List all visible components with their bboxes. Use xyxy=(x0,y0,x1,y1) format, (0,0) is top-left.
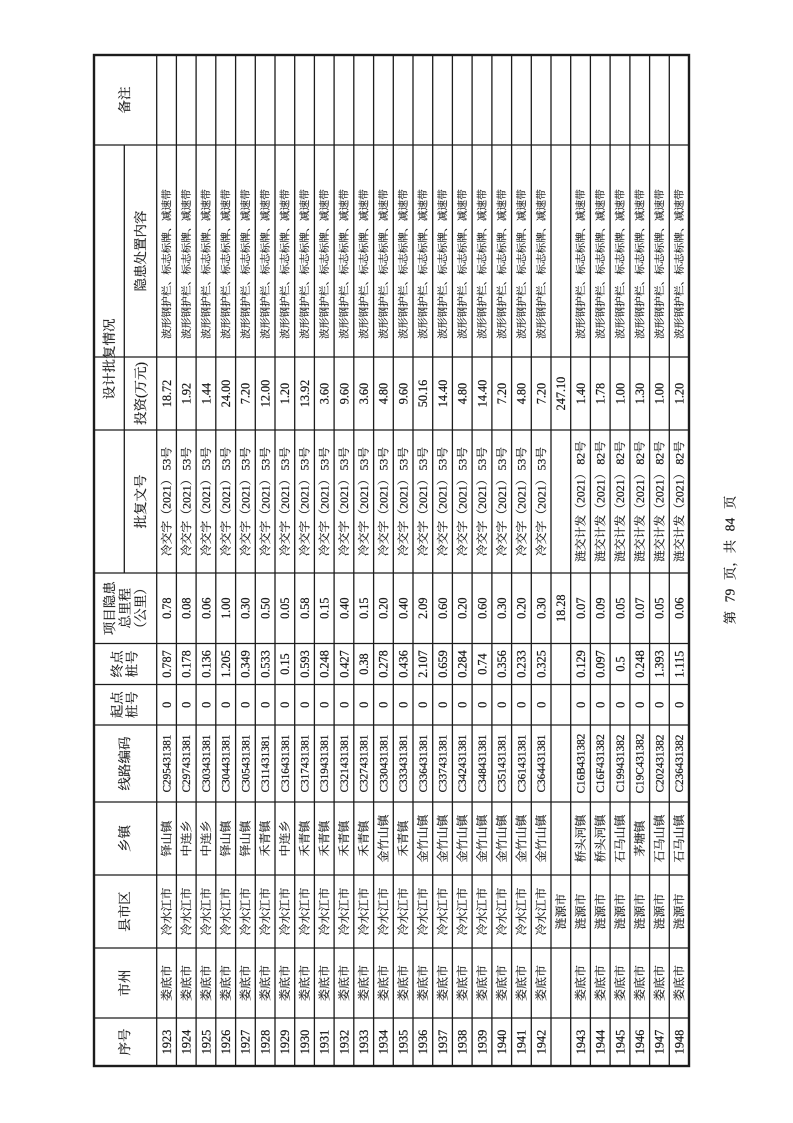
svg-text:2021: 2021 xyxy=(475,485,489,509)
svg-text:0: 0 xyxy=(318,702,332,708)
svg-text:0.30: 0.30 xyxy=(239,598,253,619)
svg-text:2021: 2021 xyxy=(613,479,627,503)
svg-text:2021: 2021 xyxy=(436,485,450,509)
svg-text:4.80: 4.80 xyxy=(377,383,391,404)
svg-text:2021: 2021 xyxy=(298,485,312,509)
svg-text:2021: 2021 xyxy=(593,479,607,503)
svg-text:0: 0 xyxy=(416,702,430,708)
svg-text:9.60: 9.60 xyxy=(337,383,351,404)
svg-text:0.78: 0.78 xyxy=(160,598,174,619)
svg-text:C364431381: C364431381 xyxy=(536,735,548,793)
svg-text:0.30: 0.30 xyxy=(495,598,509,619)
svg-text:0: 0 xyxy=(436,702,450,708)
svg-text:53: 53 xyxy=(475,459,489,471)
svg-text:0.07: 0.07 xyxy=(633,598,647,619)
svg-text:53: 53 xyxy=(298,459,312,471)
svg-text:7.20: 7.20 xyxy=(495,383,509,404)
svg-text:0.15: 0.15 xyxy=(318,598,332,619)
svg-text:82: 82 xyxy=(613,453,627,465)
svg-text:53: 53 xyxy=(534,459,548,471)
svg-text:0.284: 0.284 xyxy=(456,650,470,677)
svg-text:247.10: 247.10 xyxy=(554,377,568,411)
svg-text:1.78: 1.78 xyxy=(594,383,608,404)
svg-text:0.30: 0.30 xyxy=(534,598,548,619)
svg-text:7.20: 7.20 xyxy=(239,383,253,404)
svg-text:0: 0 xyxy=(219,702,233,708)
svg-text:1937: 1937 xyxy=(436,1030,450,1054)
svg-text:0: 0 xyxy=(180,702,194,708)
svg-text:53: 53 xyxy=(317,459,331,471)
svg-text:0.05: 0.05 xyxy=(653,598,667,619)
svg-text:0: 0 xyxy=(337,702,351,708)
svg-text:1.92: 1.92 xyxy=(180,383,194,404)
svg-text:1.20: 1.20 xyxy=(672,383,686,404)
svg-text:2021: 2021 xyxy=(258,485,272,509)
svg-text:1944: 1944 xyxy=(594,1030,608,1054)
svg-text:C351431381: C351431381 xyxy=(497,735,509,793)
svg-text:14.40: 14.40 xyxy=(436,380,450,407)
svg-text:79: 79 xyxy=(723,589,738,603)
svg-text:53: 53 xyxy=(357,459,371,471)
svg-text:0.097: 0.097 xyxy=(594,650,608,677)
svg-text:0: 0 xyxy=(633,702,647,708)
svg-text:0.40: 0.40 xyxy=(396,598,410,619)
svg-text:0.248: 0.248 xyxy=(633,650,647,677)
svg-text:2021: 2021 xyxy=(337,485,351,509)
svg-text:1940: 1940 xyxy=(495,1030,509,1054)
svg-text:1.00: 1.00 xyxy=(653,383,667,404)
svg-text:82: 82 xyxy=(574,453,588,465)
svg-text:C295431381: C295431381 xyxy=(162,735,174,793)
svg-text:53: 53 xyxy=(515,459,529,471)
svg-text:0: 0 xyxy=(594,702,608,708)
svg-text:2021: 2021 xyxy=(574,479,588,503)
svg-text:2021: 2021 xyxy=(455,485,469,509)
svg-text:53: 53 xyxy=(495,459,509,471)
svg-text:0: 0 xyxy=(574,702,588,708)
svg-text:2021: 2021 xyxy=(396,485,410,509)
svg-text:C337431381: C337431381 xyxy=(438,735,450,793)
svg-text:0.06: 0.06 xyxy=(199,598,213,619)
svg-text:0: 0 xyxy=(396,702,410,708)
svg-text:C297431381: C297431381 xyxy=(181,735,193,793)
svg-text:2021: 2021 xyxy=(219,485,233,509)
svg-text:C327431381: C327431381 xyxy=(359,735,371,793)
svg-text:C342431381: C342431381 xyxy=(457,735,469,793)
svg-text:1946: 1946 xyxy=(633,1030,647,1054)
svg-text:0.05: 0.05 xyxy=(613,598,627,619)
svg-text:1938: 1938 xyxy=(456,1030,470,1054)
svg-text:C361431381: C361431381 xyxy=(516,735,528,793)
svg-text:C305431381: C305431381 xyxy=(240,735,252,793)
svg-text:0: 0 xyxy=(160,702,174,708)
svg-text:7.20: 7.20 xyxy=(534,383,548,404)
svg-text:53: 53 xyxy=(416,459,430,471)
svg-text:0: 0 xyxy=(239,702,253,708)
svg-text:1926: 1926 xyxy=(219,1030,233,1054)
svg-text:0: 0 xyxy=(653,702,667,708)
svg-text:1943: 1943 xyxy=(574,1030,588,1054)
svg-text:1929: 1929 xyxy=(278,1030,292,1054)
svg-text:1.40: 1.40 xyxy=(574,383,588,404)
svg-text:0: 0 xyxy=(475,702,489,708)
svg-text:C19C431382: C19C431382 xyxy=(635,734,647,794)
svg-text:0: 0 xyxy=(298,702,312,708)
svg-text:0.60: 0.60 xyxy=(475,598,489,619)
svg-text:0.74: 0.74 xyxy=(475,653,489,674)
svg-text:C303431381: C303431381 xyxy=(201,735,213,793)
svg-text:2021: 2021 xyxy=(416,485,430,509)
svg-text:C16B431382: C16B431382 xyxy=(576,734,588,794)
svg-text:0.5: 0.5 xyxy=(613,656,627,671)
svg-text:1.00: 1.00 xyxy=(219,598,233,619)
svg-text:0.349: 0.349 xyxy=(239,650,253,677)
svg-text:0.38: 0.38 xyxy=(357,653,371,674)
svg-text:0.40: 0.40 xyxy=(337,598,351,619)
svg-text:1.30: 1.30 xyxy=(633,383,647,404)
svg-text:1.115: 1.115 xyxy=(672,651,686,678)
svg-text:C317431381: C317431381 xyxy=(300,735,312,793)
svg-text:0.08: 0.08 xyxy=(180,598,194,619)
svg-text:0: 0 xyxy=(377,702,391,708)
svg-text:2021: 2021 xyxy=(653,479,667,503)
svg-text:0.129: 0.129 xyxy=(574,650,588,677)
svg-text:0.178: 0.178 xyxy=(180,650,194,677)
svg-text:4.80: 4.80 xyxy=(515,383,529,404)
svg-text:53: 53 xyxy=(219,459,233,471)
svg-text:0.325: 0.325 xyxy=(534,650,548,677)
svg-text:C333431381: C333431381 xyxy=(398,735,410,793)
svg-text:1924: 1924 xyxy=(180,1030,194,1054)
svg-text:C236431382: C236431382 xyxy=(674,735,686,793)
svg-text:C311431381: C311431381 xyxy=(260,735,272,792)
svg-text:1947: 1947 xyxy=(653,1030,667,1054)
svg-text:1932: 1932 xyxy=(337,1030,351,1054)
svg-text:12.00: 12.00 xyxy=(258,380,272,407)
svg-text:1942: 1942 xyxy=(534,1030,548,1054)
svg-text:50.16: 50.16 xyxy=(416,380,430,407)
svg-text:0: 0 xyxy=(199,702,213,708)
svg-text:14.40: 14.40 xyxy=(475,380,489,407)
svg-text:84: 84 xyxy=(723,518,738,532)
svg-text:0.356: 0.356 xyxy=(495,650,509,677)
svg-text:0.233: 0.233 xyxy=(515,650,529,677)
svg-text:1939: 1939 xyxy=(475,1030,489,1054)
svg-text:1948: 1948 xyxy=(672,1030,686,1054)
svg-text:1928: 1928 xyxy=(258,1030,272,1054)
svg-text:2021: 2021 xyxy=(633,479,647,503)
svg-text:0: 0 xyxy=(258,702,272,708)
svg-text:2.107: 2.107 xyxy=(416,650,430,677)
svg-text:82: 82 xyxy=(633,453,647,465)
svg-text:2021: 2021 xyxy=(534,485,548,509)
svg-text:0.05: 0.05 xyxy=(278,598,292,619)
svg-text:0.427: 0.427 xyxy=(337,650,351,677)
svg-text:0: 0 xyxy=(515,702,529,708)
svg-text:0: 0 xyxy=(278,702,292,708)
svg-text:0.15: 0.15 xyxy=(278,653,292,674)
svg-text:C336431381: C336431381 xyxy=(418,735,430,793)
svg-text:1923: 1923 xyxy=(160,1030,174,1054)
svg-text:0: 0 xyxy=(534,702,548,708)
svg-text:0: 0 xyxy=(495,702,509,708)
svg-text:0.60: 0.60 xyxy=(436,598,450,619)
svg-text:0.20: 0.20 xyxy=(515,598,529,619)
svg-text:0.20: 0.20 xyxy=(456,598,470,619)
svg-text:53: 53 xyxy=(337,459,351,471)
svg-text:53: 53 xyxy=(258,459,272,471)
svg-text:1945: 1945 xyxy=(613,1030,627,1054)
svg-text:0: 0 xyxy=(456,702,470,708)
svg-text:1931: 1931 xyxy=(318,1030,332,1054)
svg-text:2021: 2021 xyxy=(495,485,509,509)
svg-text:2021: 2021 xyxy=(199,485,213,509)
svg-text:C199431382: C199431382 xyxy=(615,735,627,793)
svg-text:2021: 2021 xyxy=(515,485,529,509)
svg-text:82: 82 xyxy=(593,453,607,465)
svg-text:C321431381: C321431381 xyxy=(339,735,351,793)
svg-text:0: 0 xyxy=(672,702,686,708)
svg-text:53: 53 xyxy=(396,459,410,471)
svg-text:C202431382: C202431382 xyxy=(654,735,666,793)
svg-text:(: ( xyxy=(133,393,148,398)
svg-text:18.72: 18.72 xyxy=(160,380,174,407)
svg-text:0: 0 xyxy=(613,702,627,708)
svg-text:): ) xyxy=(133,362,148,367)
svg-text:3.60: 3.60 xyxy=(318,383,332,404)
svg-text:24.00: 24.00 xyxy=(219,380,233,407)
svg-text:53: 53 xyxy=(199,459,213,471)
svg-text:0.20: 0.20 xyxy=(377,598,391,619)
svg-text:C16F431382: C16F431382 xyxy=(595,734,607,792)
svg-text:C330431381: C330431381 xyxy=(378,735,390,793)
svg-text:1941: 1941 xyxy=(515,1030,529,1054)
svg-text:1927: 1927 xyxy=(239,1030,253,1054)
svg-text:1.00: 1.00 xyxy=(613,383,627,404)
svg-text:4.80: 4.80 xyxy=(456,383,470,404)
svg-text:3.60: 3.60 xyxy=(357,383,371,404)
svg-text:2021: 2021 xyxy=(377,485,391,509)
svg-text:0.50: 0.50 xyxy=(258,598,272,619)
svg-text:0.659: 0.659 xyxy=(436,650,450,677)
svg-text:2021: 2021 xyxy=(278,485,292,509)
svg-text:0.136: 0.136 xyxy=(199,650,213,677)
svg-text:C316431381: C316431381 xyxy=(280,735,292,793)
svg-text:18.28: 18.28 xyxy=(554,595,568,622)
svg-text:1.205: 1.205 xyxy=(219,650,233,677)
svg-text:0.436: 0.436 xyxy=(396,650,410,677)
svg-text:0.533: 0.533 xyxy=(258,650,272,677)
svg-text:0.593: 0.593 xyxy=(298,650,312,677)
svg-text:0.06: 0.06 xyxy=(672,598,686,619)
svg-text:0.787: 0.787 xyxy=(160,650,174,677)
svg-text:53: 53 xyxy=(278,459,292,471)
svg-text:0.278: 0.278 xyxy=(377,650,391,677)
svg-text:1933: 1933 xyxy=(357,1030,371,1054)
svg-text:82: 82 xyxy=(653,453,667,465)
svg-text:2021: 2021 xyxy=(357,485,371,509)
svg-text:53: 53 xyxy=(436,459,450,471)
svg-text:1934: 1934 xyxy=(377,1030,391,1054)
svg-text:C319431381: C319431381 xyxy=(319,735,331,793)
svg-text:2021: 2021 xyxy=(672,479,686,503)
svg-text:1.393: 1.393 xyxy=(653,650,667,677)
svg-text:2021: 2021 xyxy=(160,485,174,509)
svg-text:C304431381: C304431381 xyxy=(221,735,233,793)
svg-text:1.20: 1.20 xyxy=(278,383,292,404)
svg-text:9.60: 9.60 xyxy=(396,383,410,404)
svg-text:0.15: 0.15 xyxy=(357,598,371,619)
svg-text:2021: 2021 xyxy=(239,485,253,509)
svg-text:1935: 1935 xyxy=(396,1030,410,1054)
svg-text:0.58: 0.58 xyxy=(298,598,312,619)
svg-text:0.248: 0.248 xyxy=(318,650,332,677)
svg-text:0.07: 0.07 xyxy=(574,598,588,619)
svg-text:1936: 1936 xyxy=(416,1030,430,1054)
svg-text:53: 53 xyxy=(455,459,469,471)
svg-text:2.09: 2.09 xyxy=(416,598,430,619)
svg-text:82: 82 xyxy=(672,453,686,465)
svg-text:2021: 2021 xyxy=(179,485,193,509)
svg-text:2021: 2021 xyxy=(317,485,331,509)
svg-text:53: 53 xyxy=(239,459,253,471)
svg-text:1.44: 1.44 xyxy=(199,383,213,404)
svg-text:13.92: 13.92 xyxy=(298,380,312,407)
svg-text:53: 53 xyxy=(179,459,193,471)
svg-text:C348431381: C348431381 xyxy=(477,735,489,793)
svg-text:1925: 1925 xyxy=(199,1030,213,1054)
svg-text:0: 0 xyxy=(357,702,371,708)
svg-text:0.09: 0.09 xyxy=(594,598,608,619)
svg-text:53: 53 xyxy=(160,459,174,471)
svg-text:1930: 1930 xyxy=(298,1030,312,1054)
svg-text:53: 53 xyxy=(377,459,391,471)
